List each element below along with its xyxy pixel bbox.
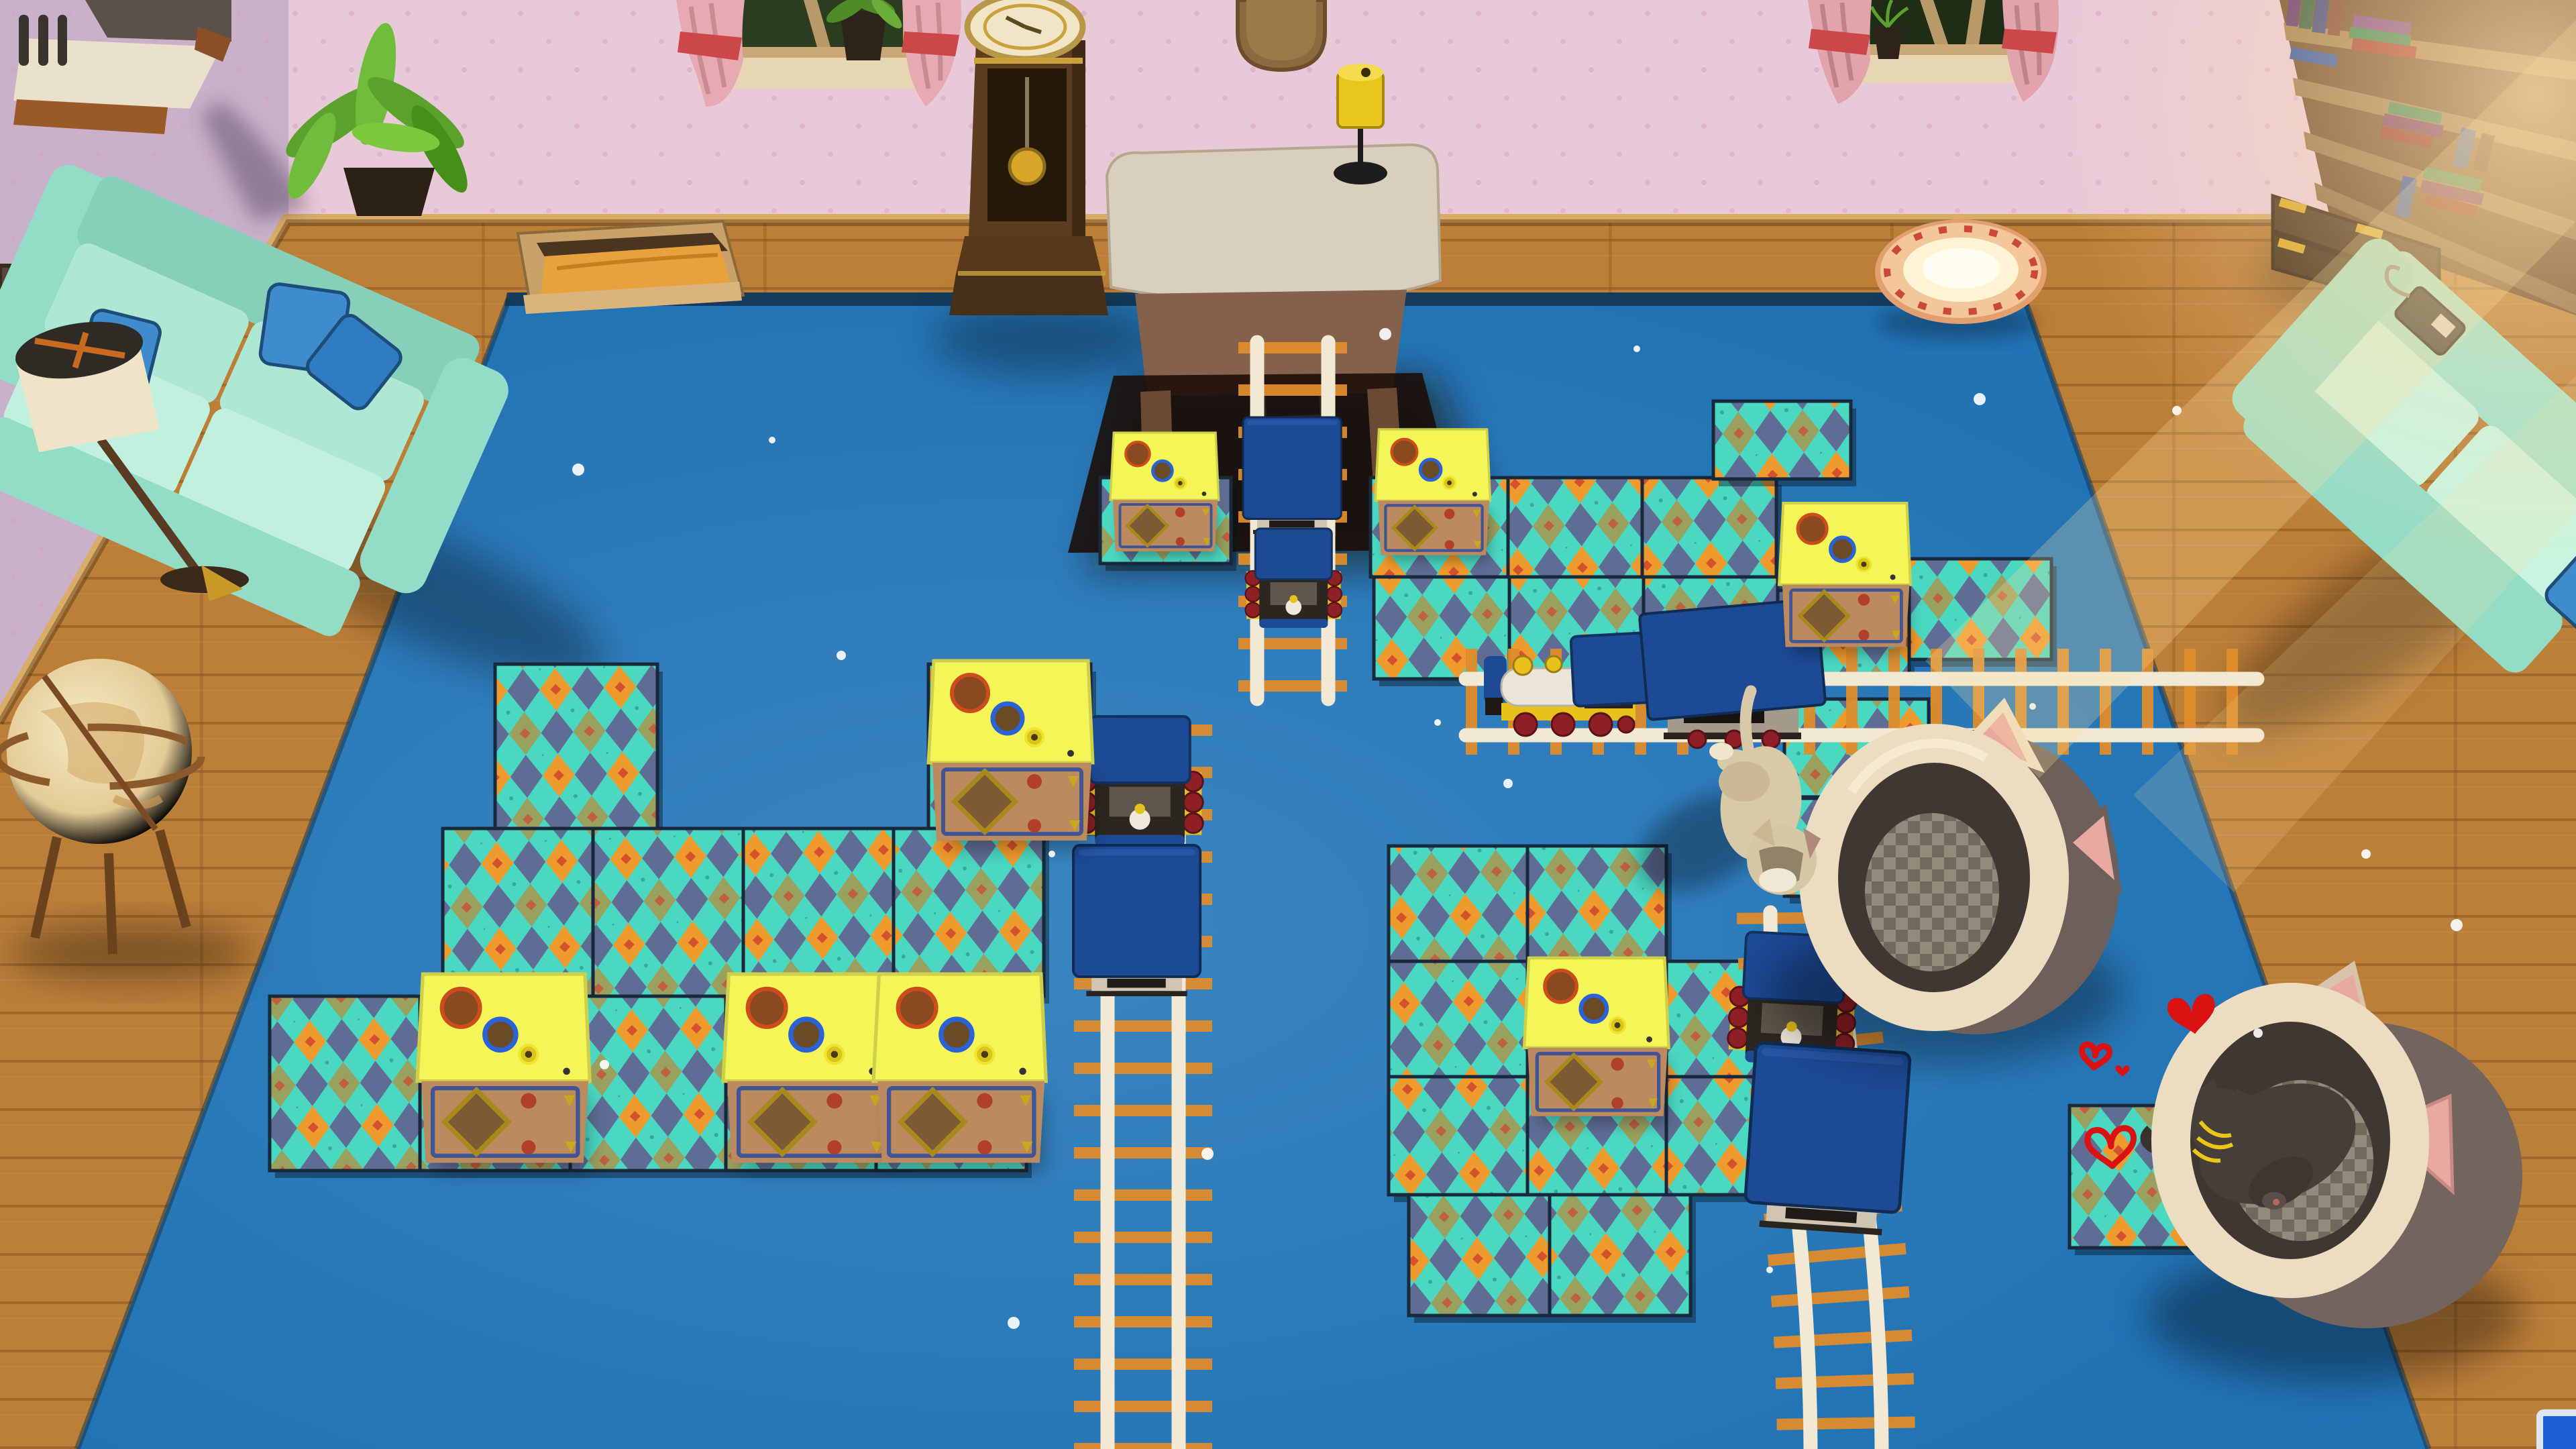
sparkle-dot bbox=[572, 464, 584, 476]
rug-tile[interactable] bbox=[1389, 961, 1533, 1084]
toy-box[interactable] bbox=[873, 974, 1046, 1171]
toy-box[interactable] bbox=[1110, 433, 1219, 557]
rug-tile[interactable] bbox=[1389, 846, 1533, 969]
curtain-tie bbox=[902, 32, 959, 56]
rug-tile[interactable] bbox=[495, 664, 663, 836]
train-car-loco-v[interactable] bbox=[1246, 529, 1342, 628]
train-car-wagon-v[interactable] bbox=[1073, 845, 1200, 996]
rug-tile[interactable] bbox=[1389, 1077, 1533, 1202]
rug-tile[interactable] bbox=[1642, 478, 1782, 584]
toy-box[interactable] bbox=[1524, 958, 1669, 1123]
train-car-wagon-v[interactable] bbox=[1743, 1042, 1911, 1236]
sparkle-dot bbox=[1008, 1317, 1020, 1329]
rug-tile[interactable] bbox=[570, 996, 731, 1178]
rug-tile[interactable] bbox=[1409, 1195, 1555, 1323]
sparkle-dot bbox=[2361, 849, 2371, 859]
sparkle-dot bbox=[769, 437, 775, 443]
rug-tile[interactable] bbox=[1713, 401, 1856, 486]
toy-box[interactable] bbox=[1375, 429, 1491, 561]
round-cushion bbox=[1875, 219, 2047, 338]
rug-tile[interactable] bbox=[270, 996, 425, 1178]
toy-train[interactable] bbox=[1243, 417, 1342, 628]
sparkle-dot bbox=[837, 651, 846, 660]
pet-tray bbox=[518, 221, 743, 314]
toy-box[interactable] bbox=[928, 661, 1093, 849]
table-lamp bbox=[1334, 64, 1387, 184]
sparkle-dot bbox=[1766, 1267, 1773, 1273]
sparkle-dot bbox=[1633, 345, 1640, 352]
sparkle-dot bbox=[600, 1060, 609, 1069]
toy-box[interactable] bbox=[417, 974, 590, 1171]
train-car-loco-v[interactable] bbox=[1077, 716, 1203, 847]
rug-tile[interactable] bbox=[1550, 1195, 1696, 1323]
toy-box[interactable] bbox=[1779, 503, 1911, 653]
window-plant-pot bbox=[1874, 25, 1903, 59]
rug-tile[interactable] bbox=[1508, 478, 1648, 584]
wall-hanging bbox=[1238, 0, 1325, 70]
sparkle-dot bbox=[1503, 779, 1513, 788]
sparkle-dot bbox=[1434, 719, 1441, 726]
sparkle-dot bbox=[1049, 851, 1055, 857]
sparkle-dot bbox=[1201, 1148, 1214, 1160]
corner-button[interactable] bbox=[2540, 1413, 2576, 1449]
sparkle-dot bbox=[2451, 919, 2463, 931]
train-car-wagon-v[interactable] bbox=[1243, 417, 1341, 534]
sparkle-dot bbox=[1379, 328, 1391, 340]
toy-box[interactable] bbox=[723, 974, 896, 1171]
pause-button[interactable] bbox=[19, 15, 67, 66]
sparkle-dot bbox=[1974, 393, 1986, 405]
rug-tile[interactable] bbox=[593, 828, 749, 1004]
sparkle-dot bbox=[2253, 1028, 2263, 1038]
